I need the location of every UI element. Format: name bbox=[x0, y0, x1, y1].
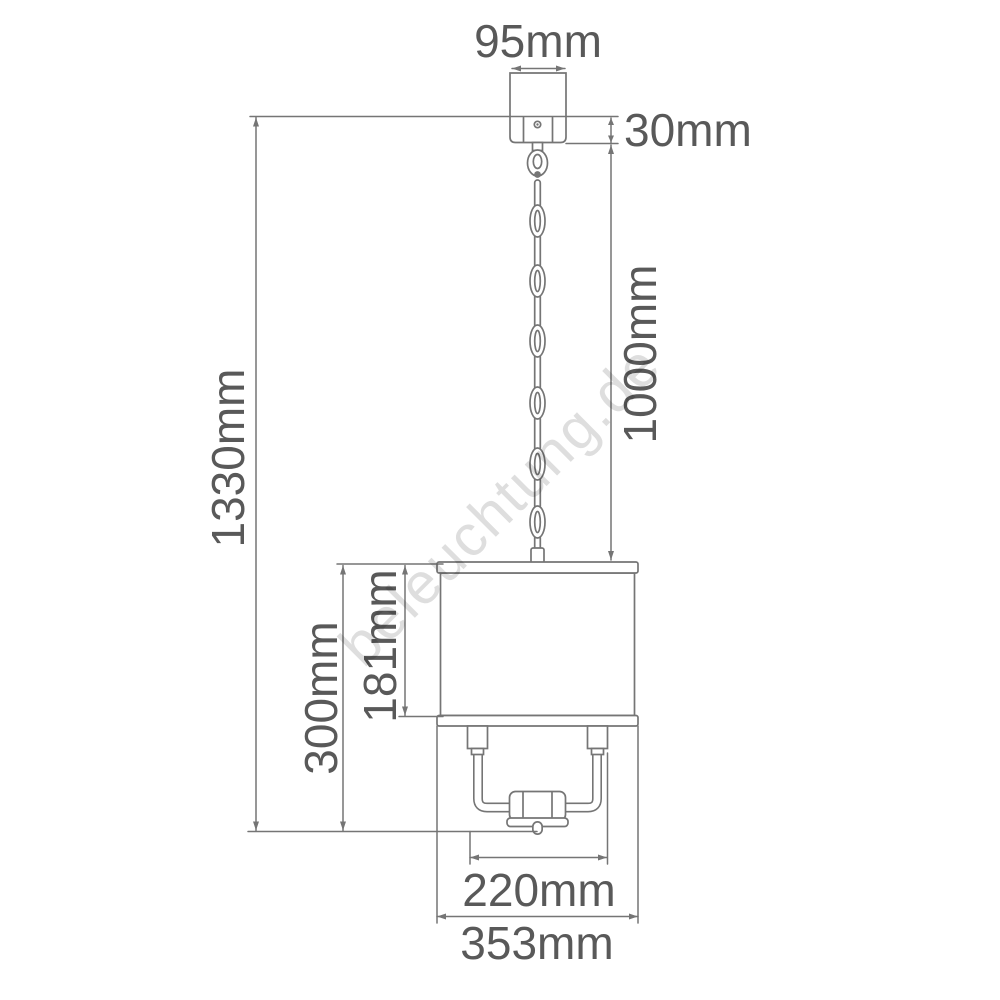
mounting-hole-dot bbox=[536, 123, 538, 125]
arrow bbox=[253, 822, 259, 831]
chain-link-edge bbox=[535, 294, 541, 328]
connector-ball bbox=[534, 171, 541, 178]
arrow bbox=[340, 822, 346, 831]
chain-link-edge bbox=[535, 180, 541, 208]
pendant-lamp-drawing bbox=[0, 0, 1000, 1000]
dim-total-height-label: 1330mm bbox=[205, 369, 251, 548]
socket-right bbox=[588, 726, 608, 749]
socket-right-sleeve bbox=[592, 749, 604, 755]
suspension-chain bbox=[528, 143, 548, 564]
chain-link-edge bbox=[535, 477, 541, 509]
shade-top-rim bbox=[437, 562, 638, 573]
shade-attachment bbox=[531, 548, 544, 563]
shade-bottom-rim bbox=[437, 716, 638, 727]
dimension-lines bbox=[256, 69, 638, 917]
chain-link-edge bbox=[535, 354, 541, 390]
center-hub bbox=[510, 792, 566, 821]
chain-link-edge bbox=[535, 234, 541, 268]
arrow bbox=[608, 118, 614, 125]
dimension-diagram: 95mm 30mm 1000mm 1330mm 181mm 300mm 220m… bbox=[0, 0, 1000, 1000]
dimension-arrows bbox=[253, 66, 638, 920]
dim-shade-width-label: 353mm bbox=[460, 920, 613, 966]
chain-link-edge bbox=[535, 416, 541, 451]
arrow bbox=[608, 551, 614, 560]
arrow bbox=[629, 914, 638, 920]
arrow bbox=[598, 855, 607, 861]
shade-body bbox=[441, 573, 635, 716]
dim-canopy-width-label: 95mm bbox=[474, 18, 602, 64]
lamp-shade bbox=[437, 562, 638, 726]
lamp-frame bbox=[468, 726, 608, 830]
ceiling-canopy bbox=[250, 73, 618, 143]
dim-canopy-height-label: 30mm bbox=[624, 107, 752, 153]
canopy-outline bbox=[510, 73, 566, 143]
dim-frame-width-label: 220mm bbox=[462, 867, 615, 913]
socket-left-sleeve bbox=[472, 749, 484, 755]
dim-shade-height-label: 181mm bbox=[357, 569, 403, 722]
dim-chain-length-label: 1000mm bbox=[617, 265, 663, 444]
arrow bbox=[608, 145, 614, 154]
dim-body-height-label: 300mm bbox=[298, 621, 344, 774]
arrow bbox=[253, 118, 259, 127]
arrow bbox=[470, 855, 479, 861]
arrow bbox=[437, 914, 446, 920]
arrow bbox=[608, 136, 614, 143]
socket-left bbox=[468, 726, 488, 749]
arrow bbox=[340, 566, 346, 575]
